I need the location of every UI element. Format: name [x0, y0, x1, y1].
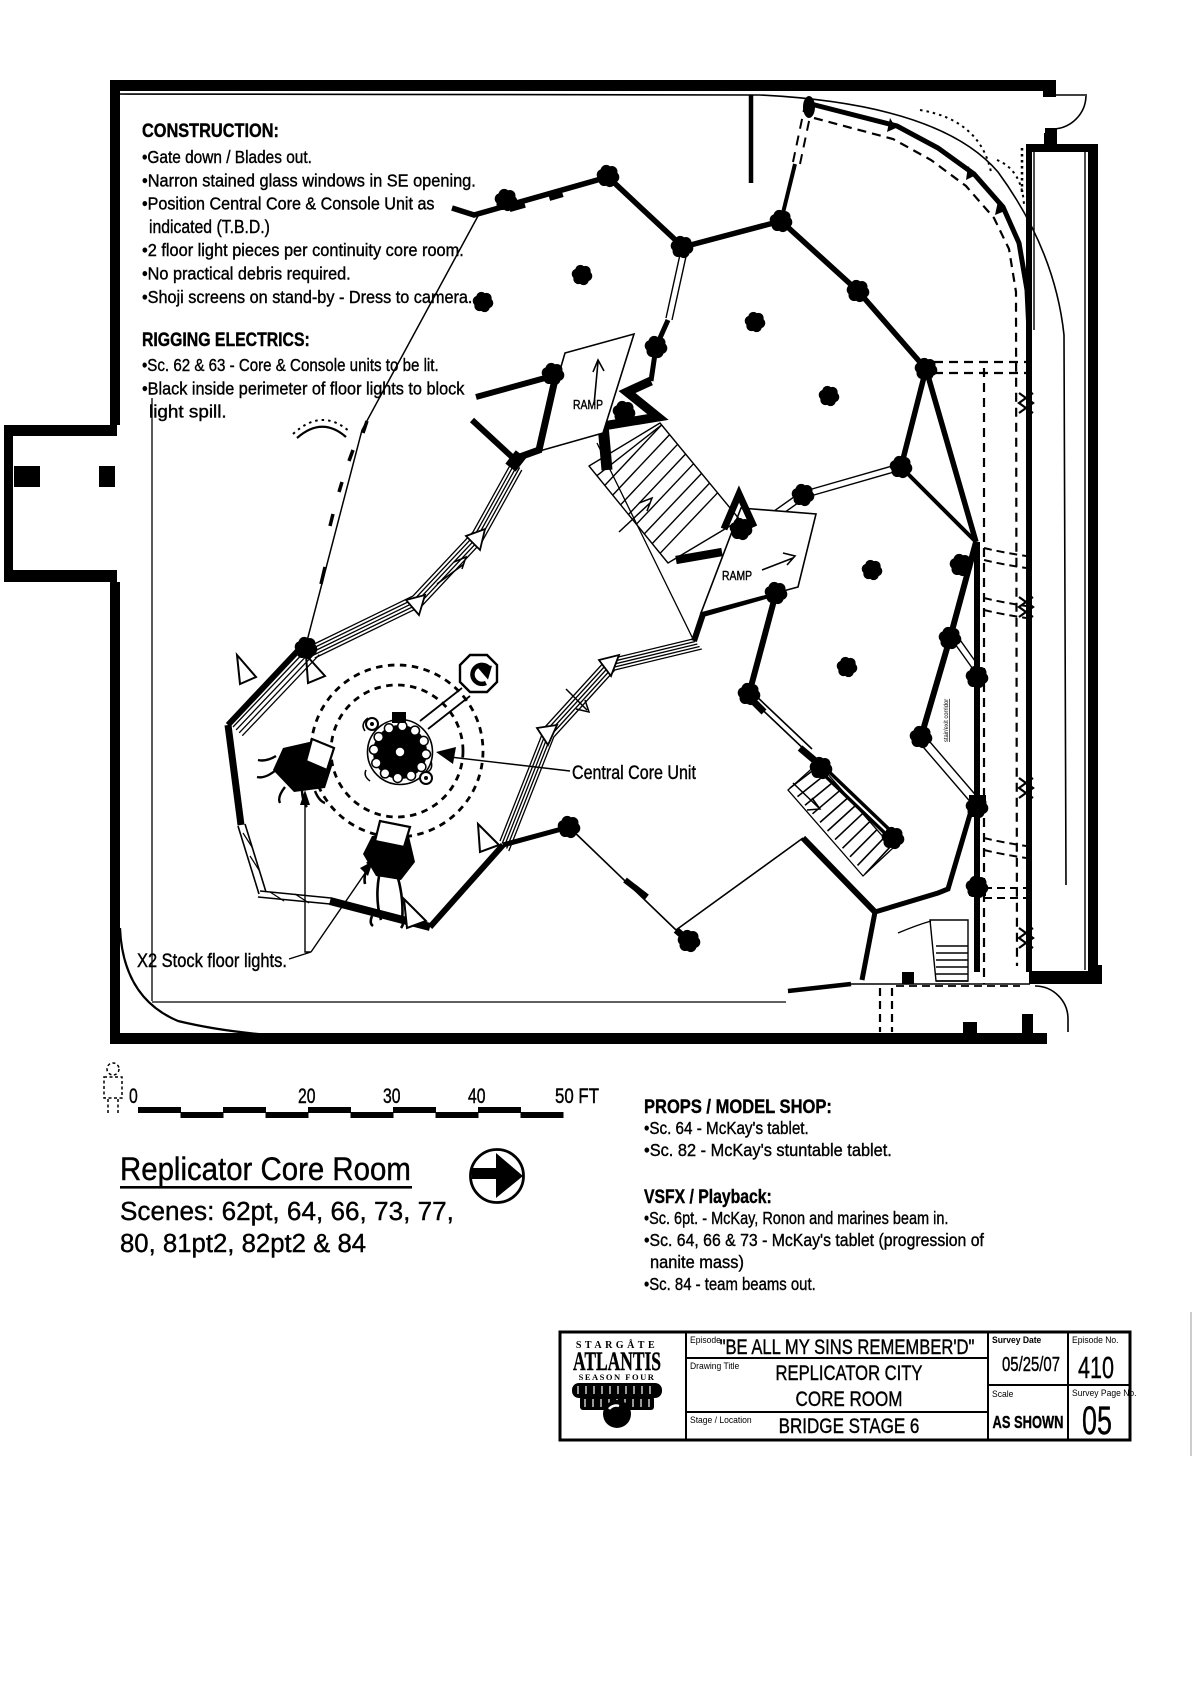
- svg-text:410: 410: [1078, 1350, 1114, 1385]
- svg-text:REPLICATOR CITY: REPLICATOR CITY: [776, 1362, 923, 1385]
- svg-text:SEASON FOUR: SEASON FOUR: [579, 1372, 656, 1382]
- svg-text:•Sc. 6pt. - McKay, Ronon and m: •Sc. 6pt. - McKay, Ronon and marines bea…: [644, 1209, 948, 1229]
- svg-text:BRIDGE STAGE 6: BRIDGE STAGE 6: [779, 1415, 920, 1438]
- svg-text:05/25/07: 05/25/07: [1002, 1353, 1060, 1376]
- svg-text:05: 05: [1082, 1399, 1112, 1444]
- svg-text:80, 81pt2, 82pt2 & 84: 80, 81pt2, 82pt2 & 84: [120, 1230, 366, 1258]
- svg-text:CONSTRUCTION:: CONSTRUCTION:: [142, 120, 279, 141]
- svg-text:•Sc. 82 - McKay's stuntable ta: •Sc. 82 - McKay's stuntable tablet.: [644, 1139, 892, 1160]
- svg-text:•Narron stained glass windows: •Narron stained glass windows in SE open…: [142, 170, 476, 191]
- svg-text:•No practical debris required.: •No practical debris required.: [142, 263, 351, 284]
- svg-text:Stage / Location: Stage / Location: [690, 1415, 752, 1426]
- svg-text:Scenes: 62pt, 64, 66, 73, 77,: Scenes: 62pt, 64, 66, 73, 77,: [120, 1196, 454, 1226]
- svg-text:nanite mass): nanite mass): [650, 1251, 744, 1272]
- svg-text:VSFX / Playback:: VSFX / Playback:: [644, 1186, 772, 1208]
- svg-text:X2 Stock floor lights.: X2 Stock floor lights.: [137, 950, 287, 971]
- svg-text:RAMP: RAMP: [573, 398, 603, 412]
- svg-text:•2 floor light pieces per cont: •2 floor light pieces per continuity cor…: [142, 239, 464, 260]
- svg-text:RIGGING ELECTRICS:: RIGGING ELECTRICS:: [142, 329, 310, 351]
- svg-text:Scale: Scale: [992, 1389, 1013, 1400]
- svg-text:0: 0: [129, 1084, 138, 1108]
- svg-text:Survey Page No.: Survey Page No.: [1072, 1388, 1136, 1399]
- svg-text:30: 30: [383, 1084, 401, 1108]
- svg-text:40: 40: [468, 1084, 486, 1108]
- svg-text:•Gate down / Blades out.: •Gate down / Blades out.: [142, 147, 312, 167]
- svg-text:•Position Central Core & Conso: •Position Central Core & Console Unit as: [142, 194, 434, 214]
- svg-text:Episode: Episode: [690, 1335, 721, 1346]
- svg-text:"BE ALL MY SINS REMEMBER'D": "BE ALL MY SINS REMEMBER'D": [720, 1336, 975, 1359]
- svg-text:Episode No.: Episode No.: [1072, 1335, 1118, 1346]
- svg-text:Survey Date: Survey Date: [992, 1335, 1041, 1346]
- svg-text:20: 20: [298, 1084, 316, 1108]
- svg-text:Replicator Core Room: Replicator Core Room: [120, 1151, 411, 1187]
- svg-text:stair/exit corridor: stair/exit corridor: [943, 699, 950, 742]
- svg-text:Drawing Title: Drawing Title: [690, 1361, 739, 1372]
- svg-text:•Sc. 84 - team beams out.: •Sc. 84 - team beams out.: [644, 1274, 816, 1295]
- svg-text:indicated (T.B.D.): indicated (T.B.D.): [149, 217, 270, 237]
- svg-text:RAMP: RAMP: [722, 569, 752, 583]
- svg-text:•Sc. 62 & 63 - Core & Console: •Sc. 62 & 63 - Core & Console units to b…: [142, 355, 439, 376]
- svg-text:•Shoji screens on stand-by - D: •Shoji screens on stand-by - Dress to ca…: [142, 286, 472, 307]
- svg-text:AS SHOWN: AS SHOWN: [993, 1413, 1064, 1433]
- svg-text:light spill.: light spill.: [149, 401, 227, 421]
- svg-text:PROPS / MODEL SHOP:: PROPS / MODEL SHOP:: [644, 1096, 832, 1117]
- svg-text:Central Core Unit: Central Core Unit: [572, 762, 696, 784]
- svg-text:•Black inside perimeter of flo: •Black inside perimeter of floor lights …: [142, 378, 465, 399]
- svg-text:CORE ROOM: CORE ROOM: [796, 1388, 903, 1411]
- svg-text:•Sc. 64, 66 & 73 - McKay's tab: •Sc. 64, 66 & 73 - McKay's tablet (progr…: [644, 1230, 984, 1250]
- svg-text:•Sc. 64 - McKay's tablet.: •Sc. 64 - McKay's tablet.: [644, 1118, 809, 1139]
- svg-text:50 FT: 50 FT: [555, 1085, 599, 1108]
